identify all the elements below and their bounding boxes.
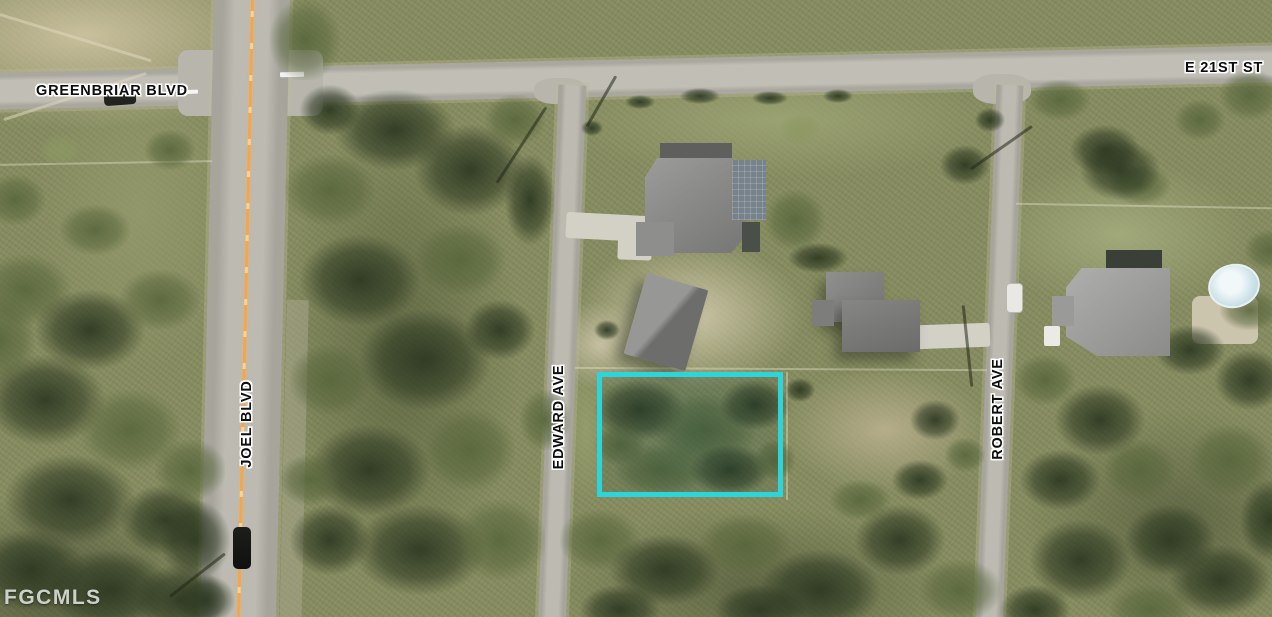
tree-canopy (945, 438, 985, 472)
tree-canopy (60, 205, 130, 255)
tree-canopy (940, 145, 990, 185)
house-wing (812, 300, 834, 326)
tree-canopy (175, 575, 235, 617)
house-wing (1052, 296, 1074, 326)
tree-canopy (1240, 480, 1272, 560)
tree-canopy (823, 89, 853, 103)
driveway (916, 323, 991, 350)
tree-canopy (270, 0, 340, 80)
tree-canopy (425, 410, 515, 490)
tree-canopy (1220, 70, 1272, 120)
tree-canopy (920, 560, 1000, 617)
tree-canopy (785, 378, 815, 402)
aerial-map: GREENBRIAR BLVD E 21ST ST JOEL BLVD EDWA… (0, 0, 1272, 617)
tree-canopy (290, 505, 370, 575)
watermark: FGCMLS (4, 586, 102, 610)
pool-screen-enclosure (732, 160, 766, 220)
tree-canopy (40, 135, 80, 165)
tree-canopy (680, 88, 720, 104)
tree-canopy (625, 95, 655, 109)
parcel-outline (597, 372, 783, 497)
tree-canopy (1110, 585, 1190, 617)
tree-canopy (0, 175, 45, 225)
tree-canopy (830, 480, 890, 520)
tree-canopy (581, 120, 603, 136)
tree-canopy (1080, 140, 1160, 200)
tree-canopy (120, 270, 200, 330)
tree-canopy (780, 115, 820, 145)
tree-canopy (1105, 440, 1175, 500)
tree-canopy (1000, 585, 1070, 617)
tree-canopy (290, 345, 370, 415)
house-main-roof (1066, 268, 1170, 356)
tree-canopy (505, 155, 555, 245)
tree-canopy (0, 295, 35, 385)
street-label-greenbriar-blvd: GREENBRIAR BLVD (36, 83, 188, 99)
tree-canopy (765, 190, 825, 250)
house-wing (636, 222, 674, 256)
tree-canopy (145, 130, 195, 170)
tree-canopy (155, 440, 225, 500)
tree-canopy (160, 500, 230, 580)
tree-canopy (455, 500, 545, 580)
tree-canopy (1030, 80, 1090, 120)
street-label-robert-ave: ROBERT AVE (990, 358, 1006, 459)
tree-canopy (285, 155, 375, 225)
street-label-edward-ave: EDWARD AVE (551, 365, 567, 470)
tree-canopy (752, 91, 788, 105)
street-label-e-21st-st: E 21ST ST (1185, 60, 1263, 76)
tree-canopy (1175, 100, 1225, 140)
tree-canopy (892, 460, 948, 500)
car-black (233, 527, 251, 569)
tree-canopy (975, 108, 1005, 132)
tree-canopy (910, 400, 960, 440)
tree-canopy (1245, 230, 1272, 270)
car-white (1006, 283, 1023, 313)
lanai-roof (742, 222, 760, 252)
tree-canopy (594, 320, 620, 340)
tree-canopy (465, 300, 535, 360)
tree-canopy (580, 585, 660, 617)
road-centerline (236, 0, 254, 617)
tree-canopy (1020, 450, 1100, 510)
white-shed (1044, 326, 1060, 346)
house-roof-section (842, 300, 920, 352)
tree-canopy (280, 455, 340, 505)
tree-canopy (415, 225, 505, 295)
street-label-joel-blvd: JOEL BLVD (239, 380, 255, 467)
tree-canopy (715, 585, 805, 617)
